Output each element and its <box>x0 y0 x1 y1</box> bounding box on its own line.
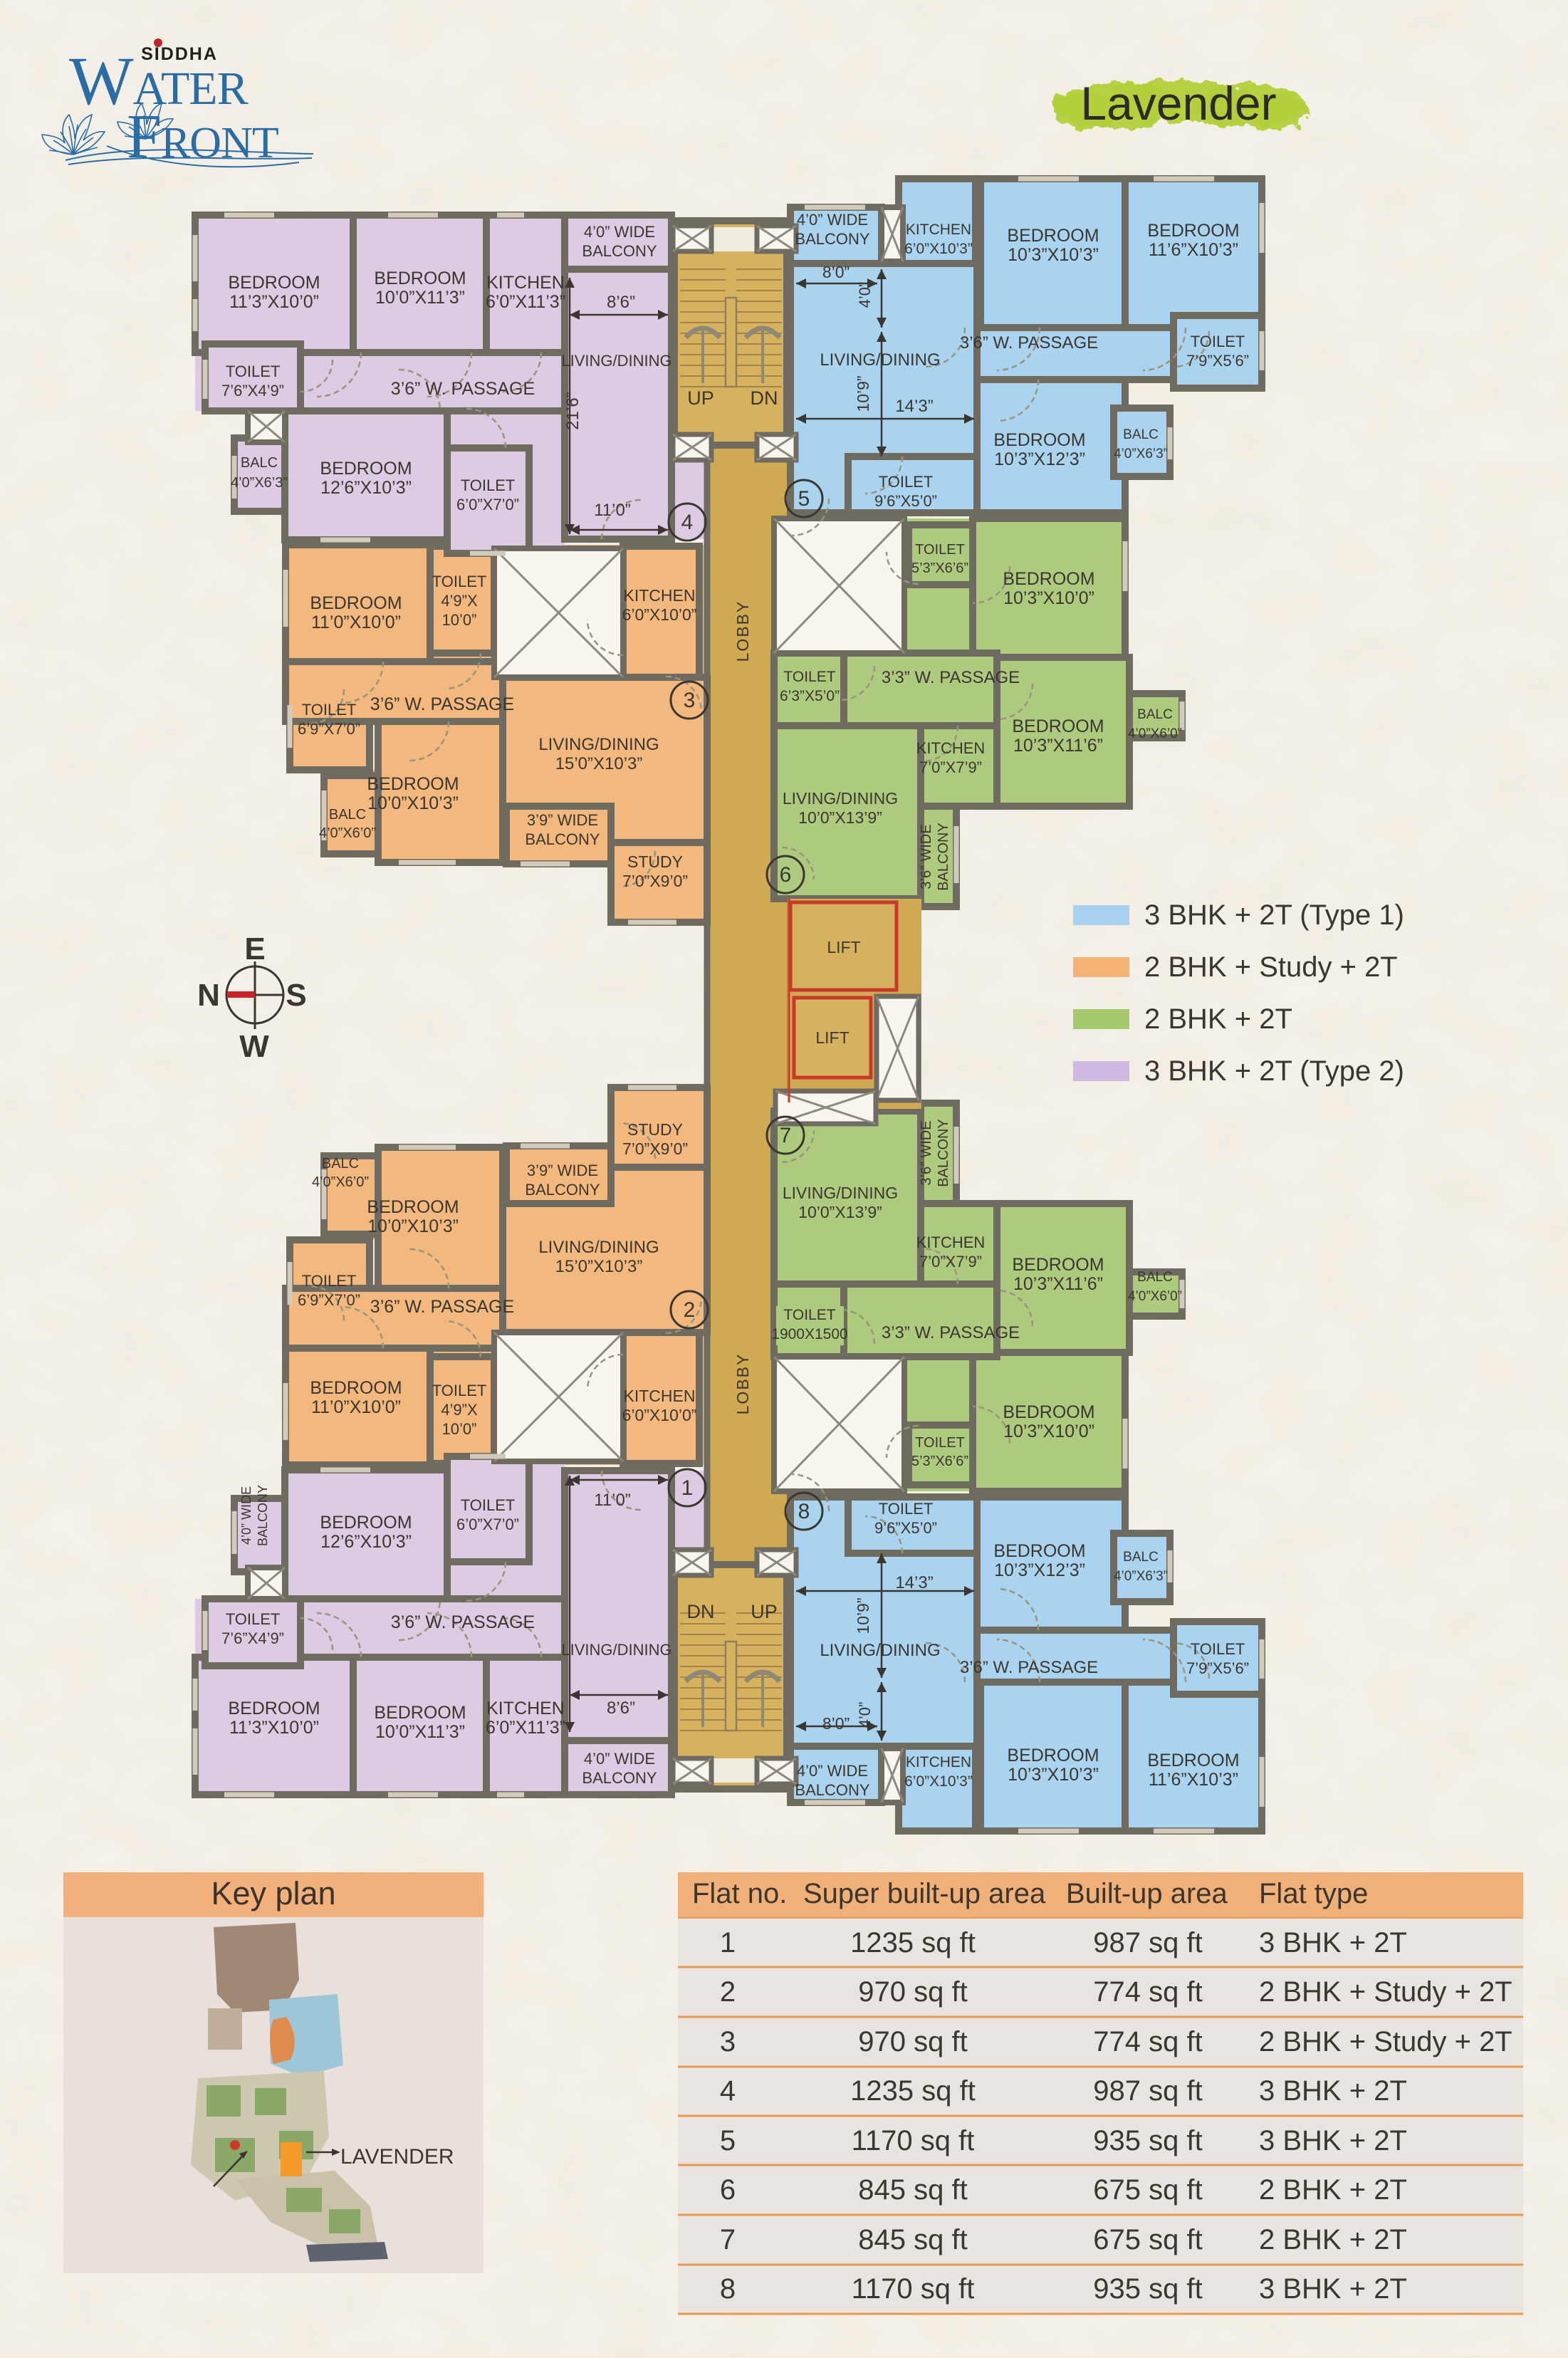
svg-text:15’0”X10’3”: 15’0”X10’3” <box>555 1257 643 1276</box>
svg-text:BALCONY: BALCONY <box>795 1781 869 1799</box>
svg-text:10’3”X10’3”: 10’3”X10’3” <box>1008 1765 1099 1785</box>
svg-text:LIFT: LIFT <box>827 938 860 956</box>
svg-text:BALCONY: BALCONY <box>936 1119 951 1187</box>
svg-text:Flat no.: Flat no. <box>692 1878 787 1909</box>
svg-text:3 BHK + 2T: 3 BHK + 2T <box>1259 1927 1407 1958</box>
svg-text:BALC: BALC <box>1137 1270 1173 1285</box>
svg-text:TOILET: TOILET <box>226 362 281 380</box>
svg-text:TOILET: TOILET <box>432 573 487 590</box>
svg-text:4’0”X6’0”: 4’0”X6’0” <box>312 1174 369 1190</box>
svg-text:TOILET: TOILET <box>879 1500 934 1518</box>
svg-text:3’6” W. PASSAGE: 3’6” W. PASSAGE <box>960 333 1098 353</box>
svg-text:10’0”X11’3”: 10’0”X11’3” <box>375 288 465 308</box>
svg-text:1: 1 <box>681 1476 694 1500</box>
svg-text:Lavender: Lavender <box>1080 77 1276 130</box>
svg-text:1170 sq ft: 1170 sq ft <box>852 2273 975 2305</box>
svg-text:10’3”X10’0”: 10’3”X10’0” <box>1003 1421 1094 1441</box>
svg-text:6’9”X7’0”: 6’9”X7’0” <box>298 1291 360 1309</box>
svg-text:TOILET: TOILET <box>783 1307 835 1323</box>
svg-text:3’6” W. PASSAGE: 3’6” W. PASSAGE <box>960 1658 1098 1677</box>
svg-text:10’0”X13’9”: 10’0”X13’9” <box>798 1203 882 1221</box>
svg-text:1235 sq ft: 1235 sq ft <box>850 1927 976 1958</box>
svg-text:BEDROOM: BEDROOM <box>310 593 402 613</box>
svg-text:4’0” WIDE: 4’0” WIDE <box>584 1750 655 1768</box>
svg-text:2 BHK + Study + 2T: 2 BHK + Study + 2T <box>1259 2026 1512 2057</box>
svg-text:6’0”X7’0”: 6’0”X7’0” <box>456 496 519 513</box>
svg-text:3 BHK + 2T (Type 2): 3 BHK + 2T (Type 2) <box>1144 1055 1404 1087</box>
svg-text:21’6”: 21’6” <box>563 392 582 429</box>
svg-text:4’9”X: 4’9”X <box>441 1401 478 1419</box>
svg-text:12’6”X10’3”: 12’6”X10’3” <box>320 1532 412 1552</box>
svg-text:SIDDHA: SIDDHA <box>141 44 218 64</box>
svg-text:10’3”X12’3”: 10’3”X12’3” <box>994 1560 1085 1580</box>
svg-text:BEDROOM: BEDROOM <box>1003 1402 1094 1422</box>
svg-text:BEDROOM: BEDROOM <box>1007 226 1099 246</box>
svg-text:7’6”X4’9”: 7’6”X4’9” <box>221 1629 284 1647</box>
svg-text:3: 3 <box>720 2026 736 2057</box>
svg-text:8’0”: 8’0” <box>822 1714 850 1733</box>
svg-text:4’0” WIDE: 4’0” WIDE <box>584 223 655 241</box>
svg-text:4’0”X6’0”: 4’0”X6’0” <box>1128 1289 1182 1304</box>
svg-text:BEDROOM: BEDROOM <box>367 1197 459 1217</box>
svg-text:10’0”X10’3”: 10’0”X10’3” <box>367 793 459 813</box>
svg-text:W: W <box>239 1029 269 1064</box>
svg-text:6’0”X10’3”: 6’0”X10’3” <box>904 241 973 257</box>
svg-text:3’3” W. PASSAGE: 3’3” W. PASSAGE <box>882 668 1020 687</box>
svg-text:6’0”X11’3”: 6’0”X11’3” <box>486 1718 565 1738</box>
svg-text:1900X1500: 1900X1500 <box>771 1326 847 1342</box>
svg-text:970 sq ft: 970 sq ft <box>858 2026 967 2057</box>
svg-text:4: 4 <box>681 511 694 534</box>
svg-text:LIVING/DINING: LIVING/DINING <box>820 350 940 370</box>
svg-text:3 BHK + 2T (Type 1): 3 BHK + 2T (Type 1) <box>1144 899 1404 931</box>
svg-text:BEDROOM: BEDROOM <box>367 774 459 794</box>
svg-text:987 sq ft: 987 sq ft <box>1093 1927 1202 1958</box>
svg-text:BEDROOM: BEDROOM <box>1012 716 1104 736</box>
svg-text:UP: UP <box>687 387 714 409</box>
svg-text:2 BHK + 2T: 2 BHK + 2T <box>1259 2224 1407 2255</box>
svg-text:970 sq ft: 970 sq ft <box>858 1976 967 2008</box>
svg-text:774 sq ft: 774 sq ft <box>1093 2026 1202 2057</box>
svg-text:7’0”X9’0”: 7’0”X9’0” <box>622 1139 688 1158</box>
svg-text:845 sq ft: 845 sq ft <box>858 2224 967 2255</box>
svg-text:TOILET: TOILET <box>432 1382 487 1399</box>
svg-text:935 sq ft: 935 sq ft <box>1093 2273 1202 2305</box>
svg-text:Super built-up area: Super built-up area <box>803 1878 1046 1909</box>
svg-text:4’0”X6’3”: 4’0”X6’3” <box>1114 1569 1168 1584</box>
svg-text:7’9”X5’6”: 7’9”X5’6” <box>1186 352 1249 370</box>
svg-text:4’0”X6’3”: 4’0”X6’3” <box>1114 447 1168 461</box>
svg-text:TOILET: TOILET <box>915 542 965 558</box>
svg-text:6’0”X10’0”: 6’0”X10’0” <box>622 1406 697 1424</box>
svg-text:6: 6 <box>720 2174 736 2206</box>
svg-text:TOILET: TOILET <box>302 1272 357 1290</box>
svg-text:BEDROOM: BEDROOM <box>320 459 412 479</box>
svg-text:BALC: BALC <box>1137 707 1173 722</box>
svg-text:BEDROOM: BEDROOM <box>1003 569 1094 589</box>
svg-text:KITCHEN: KITCHEN <box>486 1699 565 1718</box>
svg-text:1: 1 <box>720 1927 736 1958</box>
svg-text:10’0”X10’3”: 10’0”X10’3” <box>367 1216 459 1236</box>
svg-text:KITCHEN: KITCHEN <box>916 1233 986 1251</box>
svg-text:BEDROOM: BEDROOM <box>993 430 1085 450</box>
svg-text:KITCHEN: KITCHEN <box>916 739 986 757</box>
svg-text:4’9”X: 4’9”X <box>441 592 478 610</box>
svg-text:8: 8 <box>798 1500 810 1523</box>
svg-text:LIVING/DINING: LIVING/DINING <box>783 1184 898 1202</box>
svg-text:2 BHK + Study + 2T: 2 BHK + Study + 2T <box>1144 951 1398 983</box>
svg-text:3’9” WIDE: 3’9” WIDE <box>527 811 598 829</box>
svg-text:Built-up area: Built-up area <box>1066 1878 1228 1909</box>
svg-text:10’3”X11’6”: 10’3”X11’6” <box>1013 736 1103 756</box>
svg-text:15’0”X10’3”: 15’0”X10’3” <box>555 754 643 773</box>
svg-text:6’0”X10’3”: 6’0”X10’3” <box>904 1773 973 1790</box>
svg-text:KITCHEN: KITCHEN <box>906 1754 971 1770</box>
svg-text:BALCONY: BALCONY <box>525 830 600 848</box>
svg-text:4’0” WIDE: 4’0” WIDE <box>239 1486 254 1545</box>
svg-text:11’3”X10’0”: 11’3”X10’0” <box>229 292 319 312</box>
svg-text:KITCHEN: KITCHEN <box>486 273 565 293</box>
svg-text:STUDY: STUDY <box>627 1120 683 1139</box>
svg-text:935 sq ft: 935 sq ft <box>1093 2125 1202 2156</box>
svg-text:BALCONY: BALCONY <box>582 1769 657 1787</box>
svg-text:BALC: BALC <box>1123 427 1159 442</box>
svg-text:LOBBY: LOBBY <box>733 1353 752 1415</box>
svg-text:BEDROOM: BEDROOM <box>1147 1751 1239 1770</box>
svg-text:BEDROOM: BEDROOM <box>374 1703 466 1723</box>
svg-text:14’3”: 14’3” <box>895 397 933 416</box>
svg-text:4’0”X6’3”: 4’0”X6’3” <box>231 475 288 491</box>
svg-text:BEDROOM: BEDROOM <box>993 1541 1085 1561</box>
svg-text:4’0” WIDE: 4’0” WIDE <box>797 1762 868 1780</box>
svg-text:LIVING/DINING: LIVING/DINING <box>820 1641 940 1660</box>
svg-text:2 BHK + 2T: 2 BHK + 2T <box>1144 1003 1292 1035</box>
svg-text:8: 8 <box>720 2273 736 2305</box>
svg-text:N: N <box>197 978 220 1013</box>
svg-text:2: 2 <box>720 1976 736 2008</box>
svg-text:10’9”: 10’9” <box>854 1597 872 1634</box>
svg-text:TOILET: TOILET <box>302 701 357 719</box>
svg-text:TOILET: TOILET <box>915 1435 965 1451</box>
svg-text:11’0”X10’0”: 11’0”X10’0” <box>311 612 401 632</box>
svg-text:LIVING/DINING: LIVING/DINING <box>561 352 671 370</box>
svg-text:TOILET: TOILET <box>783 669 835 685</box>
svg-text:7: 7 <box>780 1124 792 1147</box>
svg-text:5’3”X6’6”: 5’3”X6’6” <box>911 560 968 576</box>
svg-text:7’0”X7’9”: 7’0”X7’9” <box>919 758 982 776</box>
svg-text:BALC: BALC <box>322 1156 359 1172</box>
svg-text:4: 4 <box>720 2075 736 2107</box>
svg-text:7’0”X9’0”: 7’0”X9’0” <box>622 872 688 890</box>
svg-text:BEDROOM: BEDROOM <box>374 268 466 288</box>
svg-text:3 BHK + 2T: 3 BHK + 2T <box>1259 2125 1407 2156</box>
svg-text:BALCONY: BALCONY <box>525 1181 600 1199</box>
svg-text:10’3”X12’3”: 10’3”X12’3” <box>994 449 1085 469</box>
svg-text:11’6”X10’3”: 11’6”X10’3” <box>1149 240 1238 260</box>
svg-text:BALCONY: BALCONY <box>936 823 951 891</box>
svg-text:10’0”: 10’0” <box>442 1420 477 1438</box>
svg-text:LIVING/DINING: LIVING/DINING <box>561 1641 671 1659</box>
svg-text:3’6” WIDE: 3’6” WIDE <box>919 824 934 889</box>
svg-text:2 BHK + 2T: 2 BHK + 2T <box>1259 2174 1407 2206</box>
svg-text:BEDROOM: BEDROOM <box>310 1378 402 1398</box>
svg-text:3’6” W. PASSAGE: 3’6” W. PASSAGE <box>370 694 514 714</box>
svg-text:3: 3 <box>684 689 696 712</box>
svg-text:S: S <box>286 978 306 1013</box>
svg-text:TOILET: TOILET <box>879 473 934 491</box>
svg-text:845 sq ft: 845 sq ft <box>858 2174 967 2206</box>
svg-text:11’3”X10’0”: 11’3”X10’0” <box>229 1718 319 1738</box>
svg-text:9’6”X5’0”: 9’6”X5’0” <box>874 492 937 510</box>
svg-text:DN: DN <box>751 387 778 409</box>
svg-text:11’0”: 11’0” <box>594 501 631 520</box>
svg-text:10’9”: 10’9” <box>854 375 872 412</box>
svg-text:6: 6 <box>780 863 792 887</box>
svg-text:STUDY: STUDY <box>627 852 683 871</box>
svg-text:7: 7 <box>720 2224 736 2255</box>
svg-text:TOILET: TOILET <box>461 476 516 494</box>
svg-text:LIVING/DINING: LIVING/DINING <box>783 789 898 808</box>
svg-text:DN: DN <box>687 1601 715 1622</box>
svg-text:TOILET: TOILET <box>226 1610 281 1628</box>
svg-text:4’0” WIDE: 4’0” WIDE <box>797 211 868 229</box>
svg-text:3’6” W. PASSAGE: 3’6” W. PASSAGE <box>370 1297 514 1317</box>
svg-text:8’0”: 8’0” <box>822 263 850 281</box>
svg-text:6’0”X10’0”: 6’0”X10’0” <box>622 605 697 624</box>
svg-text:1170 sq ft: 1170 sq ft <box>852 2125 975 2156</box>
svg-text:LIVING/DINING: LIVING/DINING <box>538 1238 659 1257</box>
svg-text:UP: UP <box>751 1601 778 1622</box>
svg-text:BALC: BALC <box>329 807 366 823</box>
svg-text:6’0”X7’0”: 6’0”X7’0” <box>456 1516 519 1533</box>
svg-text:7’9”X5’6”: 7’9”X5’6” <box>1186 1659 1249 1677</box>
svg-text:11’0”: 11’0” <box>594 1491 631 1510</box>
svg-text:6’3”X5’0”: 6’3”X5’0” <box>780 688 840 704</box>
svg-text:3’6” W. PASSAGE: 3’6” W. PASSAGE <box>391 379 535 399</box>
svg-text:987 sq ft: 987 sq ft <box>1093 2075 1202 2107</box>
svg-text:3’3” W. PASSAGE: 3’3” W. PASSAGE <box>882 1323 1020 1342</box>
svg-text:3’6” W. PASSAGE: 3’6” W. PASSAGE <box>391 1612 535 1632</box>
svg-text:BALC: BALC <box>1123 1550 1159 1565</box>
svg-text:8’6”: 8’6” <box>607 293 635 312</box>
svg-text:BALCONY: BALCONY <box>256 1485 270 1546</box>
svg-text:LIVING/DINING: LIVING/DINING <box>538 735 659 754</box>
svg-text:4’0”X6’0”: 4’0”X6’0” <box>1128 726 1182 741</box>
svg-text:3’9” WIDE: 3’9” WIDE <box>527 1162 598 1179</box>
svg-text:Key plan: Key plan <box>211 1875 335 1911</box>
svg-text:BEDROOM: BEDROOM <box>1147 221 1239 241</box>
svg-text:BALC: BALC <box>241 455 278 471</box>
svg-text:5: 5 <box>798 487 810 511</box>
svg-text:Flat type: Flat type <box>1259 1878 1368 1909</box>
svg-text:10’3”X10’0”: 10’3”X10’0” <box>1003 588 1094 608</box>
svg-text:675 sq ft: 675 sq ft <box>1093 2224 1202 2255</box>
svg-text:3 BHK + 2T: 3 BHK + 2T <box>1259 2075 1407 2107</box>
svg-text:BEDROOM: BEDROOM <box>1007 1746 1099 1765</box>
svg-text:4’0”X6’0”: 4’0”X6’0” <box>319 825 376 841</box>
svg-text:LIFT: LIFT <box>815 1028 849 1047</box>
svg-text:10’0”: 10’0” <box>442 611 477 629</box>
svg-text:774 sq ft: 774 sq ft <box>1093 1976 1202 2008</box>
svg-text:10’3”X10’3”: 10’3”X10’3” <box>1008 245 1099 265</box>
svg-text:KITCHEN: KITCHEN <box>906 221 971 238</box>
svg-text:14’3”: 14’3” <box>895 1573 933 1592</box>
svg-text:TOILET: TOILET <box>461 1496 516 1514</box>
svg-text:10’0”X13’9”: 10’0”X13’9” <box>798 808 882 827</box>
svg-text:10’0”X11’3”: 10’0”X11’3” <box>375 1722 465 1742</box>
svg-text:6’0”X11’3”: 6’0”X11’3” <box>486 292 565 312</box>
svg-text:6’9”X7’0”: 6’9”X7’0” <box>298 720 360 738</box>
svg-text:BEDROOM: BEDROOM <box>1012 1255 1104 1275</box>
svg-text:7’0”X7’9”: 7’0”X7’9” <box>919 1253 982 1271</box>
svg-text:TOILET: TOILET <box>1191 333 1245 350</box>
svg-text:675 sq ft: 675 sq ft <box>1093 2174 1202 2206</box>
svg-text:10’3”X11’6”: 10’3”X11’6” <box>1013 1274 1103 1294</box>
svg-text:8’6”: 8’6” <box>607 1699 635 1718</box>
svg-text:BEDROOM: BEDROOM <box>228 1699 320 1718</box>
svg-text:9’6”X5’0”: 9’6”X5’0” <box>874 1519 937 1537</box>
svg-text:KITCHEN: KITCHEN <box>624 1387 696 1405</box>
svg-text:11’6”X10’3”: 11’6”X10’3” <box>1149 1770 1238 1790</box>
svg-text:2 BHK + Study + 2T: 2 BHK + Study + 2T <box>1259 1976 1512 2008</box>
svg-text:12’6”X10’3”: 12’6”X10’3” <box>320 478 412 498</box>
svg-text:BEDROOM: BEDROOM <box>320 1513 412 1533</box>
svg-text:LAVENDER: LAVENDER <box>340 2145 454 2169</box>
svg-text:3’6” WIDE: 3’6” WIDE <box>919 1120 934 1185</box>
svg-text:7’6”X4’9”: 7’6”X4’9” <box>221 382 284 400</box>
svg-text:BALCONY: BALCONY <box>795 230 869 248</box>
svg-text:KITCHEN: KITCHEN <box>624 586 696 605</box>
svg-text:TOILET: TOILET <box>1191 1640 1245 1658</box>
svg-text:1235 sq ft: 1235 sq ft <box>850 2075 976 2107</box>
svg-text:BALCONY: BALCONY <box>582 242 657 260</box>
svg-text:2: 2 <box>684 1298 696 1322</box>
svg-text:E: E <box>244 932 265 966</box>
svg-text:11’0”X10’0”: 11’0”X10’0” <box>311 1397 401 1417</box>
svg-text:BEDROOM: BEDROOM <box>228 273 320 293</box>
svg-text:3 BHK + 2T: 3 BHK + 2T <box>1259 2273 1407 2305</box>
svg-text:LOBBY: LOBBY <box>733 600 752 662</box>
svg-text:5: 5 <box>720 2125 736 2156</box>
svg-text:5’3”X6’6”: 5’3”X6’6” <box>911 1454 968 1469</box>
